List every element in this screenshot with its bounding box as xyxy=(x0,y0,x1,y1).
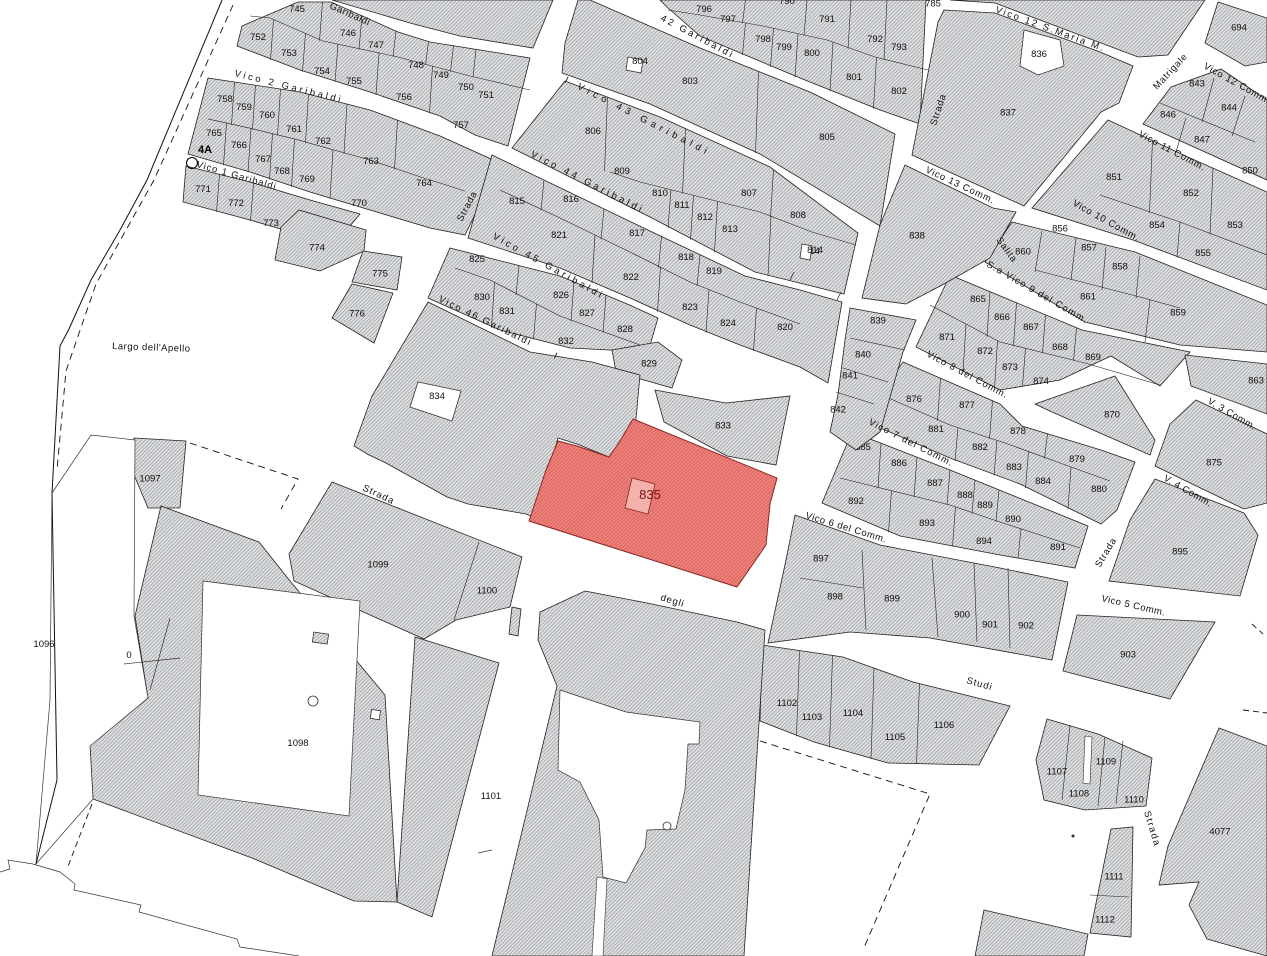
svg-text:814: 814 xyxy=(807,245,823,256)
svg-text:761: 761 xyxy=(286,124,302,135)
svg-text:770: 770 xyxy=(351,198,367,209)
svg-text:791: 791 xyxy=(819,14,835,25)
svg-text:900: 900 xyxy=(954,610,970,621)
svg-text:802: 802 xyxy=(891,86,907,97)
svg-text:843: 843 xyxy=(1189,79,1205,90)
svg-text:752: 752 xyxy=(250,32,266,43)
svg-text:753: 753 xyxy=(281,48,297,59)
svg-text:764: 764 xyxy=(416,178,432,189)
svg-text:867: 867 xyxy=(1023,322,1039,333)
svg-text:811: 811 xyxy=(674,200,689,211)
svg-text:847: 847 xyxy=(1194,135,1210,146)
svg-text:869: 869 xyxy=(1085,352,1101,363)
svg-text:890: 890 xyxy=(1005,514,1021,525)
svg-text:833: 833 xyxy=(715,421,731,432)
svg-text:750: 750 xyxy=(458,82,474,93)
svg-text:766: 766 xyxy=(231,140,247,151)
svg-text:4077: 4077 xyxy=(1209,827,1230,838)
svg-text:859: 859 xyxy=(1170,308,1186,319)
svg-text:762: 762 xyxy=(315,136,331,147)
svg-text:763: 763 xyxy=(363,156,379,167)
svg-text:855: 855 xyxy=(1195,248,1211,259)
svg-text:1100: 1100 xyxy=(477,586,497,597)
svg-text:870: 870 xyxy=(1104,410,1120,421)
svg-text:767: 767 xyxy=(255,154,271,165)
svg-text:773: 773 xyxy=(263,218,279,229)
svg-text:822: 822 xyxy=(623,272,639,283)
svg-text:751: 751 xyxy=(478,90,494,101)
svg-text:888: 888 xyxy=(957,490,973,501)
svg-text:823: 823 xyxy=(682,302,698,313)
svg-text:804: 804 xyxy=(632,56,648,67)
svg-text:1104: 1104 xyxy=(843,708,863,719)
svg-text:868: 868 xyxy=(1052,342,1068,353)
svg-text:889: 889 xyxy=(977,500,993,511)
svg-text:1106: 1106 xyxy=(934,720,954,731)
svg-text:694: 694 xyxy=(1231,23,1247,34)
svg-text:760: 760 xyxy=(259,110,275,121)
svg-text:775: 775 xyxy=(372,269,388,280)
svg-text:836: 836 xyxy=(1031,49,1047,60)
svg-text:1107: 1107 xyxy=(1047,767,1067,778)
svg-text:805: 805 xyxy=(819,132,835,143)
svg-text:886: 886 xyxy=(891,458,907,469)
svg-text:892: 892 xyxy=(848,496,864,507)
svg-text:757: 757 xyxy=(453,120,469,131)
svg-text:831: 831 xyxy=(499,306,515,317)
svg-text:1112: 1112 xyxy=(1095,915,1115,926)
svg-text:772: 772 xyxy=(228,198,244,209)
svg-text:747: 747 xyxy=(368,40,384,51)
svg-text:839: 839 xyxy=(870,316,886,327)
svg-text:899: 899 xyxy=(884,594,900,605)
svg-text:815: 815 xyxy=(509,196,525,207)
svg-text:844: 844 xyxy=(1221,103,1237,114)
svg-text:821: 821 xyxy=(551,230,567,241)
svg-text:785: 785 xyxy=(925,0,941,10)
svg-text:759: 759 xyxy=(236,102,252,113)
svg-text:824: 824 xyxy=(720,318,736,329)
svg-text:808: 808 xyxy=(790,210,806,221)
svg-text:765: 765 xyxy=(206,128,222,139)
svg-text:806: 806 xyxy=(585,126,601,137)
svg-text:852: 852 xyxy=(1183,188,1199,199)
svg-text:816: 816 xyxy=(563,194,579,205)
svg-text:893: 893 xyxy=(919,518,935,529)
svg-text:4A: 4A xyxy=(198,144,212,156)
svg-text:1111: 1111 xyxy=(1104,872,1123,883)
svg-text:1103: 1103 xyxy=(802,712,822,723)
svg-text:841: 841 xyxy=(842,371,858,382)
svg-text:790: 790 xyxy=(779,0,795,7)
svg-text:818: 818 xyxy=(678,252,694,263)
svg-text:874: 874 xyxy=(1033,376,1049,387)
svg-text:857: 857 xyxy=(1081,243,1097,254)
svg-text:810: 810 xyxy=(652,188,668,199)
svg-text:758: 758 xyxy=(217,94,233,105)
svg-text:861: 861 xyxy=(1080,292,1096,303)
svg-text:1096: 1096 xyxy=(33,639,54,650)
svg-text:746: 746 xyxy=(340,28,356,39)
svg-text:799: 799 xyxy=(776,42,792,53)
svg-text:902: 902 xyxy=(1018,621,1034,632)
svg-text:876: 876 xyxy=(906,394,922,405)
svg-text:1109: 1109 xyxy=(1096,757,1116,768)
svg-text:825: 825 xyxy=(469,254,485,265)
svg-text:851: 851 xyxy=(1106,172,1122,183)
svg-text:842: 842 xyxy=(830,405,846,416)
svg-text:883: 883 xyxy=(1006,462,1022,473)
svg-text:792: 792 xyxy=(867,34,883,45)
svg-text:865: 865 xyxy=(970,294,986,305)
svg-text:1110: 1110 xyxy=(1124,795,1144,806)
svg-text:771: 771 xyxy=(195,184,211,195)
svg-text:866: 866 xyxy=(994,312,1010,323)
svg-text:817: 817 xyxy=(629,228,645,239)
svg-text:832: 832 xyxy=(558,336,574,347)
svg-text:1105: 1105 xyxy=(885,732,905,743)
svg-text:858: 858 xyxy=(1112,262,1128,273)
svg-text:901: 901 xyxy=(982,620,998,631)
svg-text:798: 798 xyxy=(755,34,771,45)
svg-text:895: 895 xyxy=(1172,547,1188,558)
svg-text:878: 878 xyxy=(1010,426,1026,437)
svg-text:768: 768 xyxy=(274,166,290,177)
svg-text:872: 872 xyxy=(977,346,993,357)
svg-text:819: 819 xyxy=(706,266,722,277)
svg-text:820: 820 xyxy=(777,322,793,333)
svg-text:838: 838 xyxy=(909,231,925,242)
svg-text:854: 854 xyxy=(1149,220,1165,231)
svg-text:807: 807 xyxy=(741,188,757,199)
svg-text:801: 801 xyxy=(846,72,862,83)
svg-text:813: 813 xyxy=(722,224,738,235)
svg-text:830: 830 xyxy=(474,292,490,303)
svg-text:834: 834 xyxy=(429,391,445,402)
svg-text:1098: 1098 xyxy=(287,738,308,749)
svg-text:769: 769 xyxy=(299,174,315,185)
svg-text:1101: 1101 xyxy=(481,791,501,802)
svg-text:840: 840 xyxy=(855,350,871,361)
svg-text:776: 776 xyxy=(349,309,365,320)
svg-text:812: 812 xyxy=(697,212,713,223)
svg-text:796: 796 xyxy=(696,4,712,15)
svg-text:891: 891 xyxy=(1050,542,1066,553)
svg-text:884: 884 xyxy=(1035,476,1051,487)
svg-text:837: 837 xyxy=(1000,108,1016,119)
svg-text:749: 749 xyxy=(433,70,449,81)
svg-text:803: 803 xyxy=(682,76,698,87)
svg-text:850: 850 xyxy=(1242,166,1258,177)
svg-text:863: 863 xyxy=(1248,376,1264,387)
svg-text:754: 754 xyxy=(314,66,330,77)
svg-text:875: 875 xyxy=(1206,458,1222,469)
svg-text:897: 897 xyxy=(813,554,829,565)
svg-text:826: 826 xyxy=(553,290,569,301)
svg-text:828: 828 xyxy=(617,324,633,335)
svg-text:887: 887 xyxy=(927,478,943,489)
svg-text:829: 829 xyxy=(641,359,657,370)
svg-text:755: 755 xyxy=(346,76,362,87)
svg-text:797: 797 xyxy=(720,14,736,25)
svg-text:879: 879 xyxy=(1069,454,1085,465)
svg-text:774: 774 xyxy=(309,243,325,254)
svg-text:1102: 1102 xyxy=(777,698,797,709)
svg-text:903: 903 xyxy=(1120,650,1136,661)
svg-text:1097: 1097 xyxy=(139,474,160,485)
svg-text:793: 793 xyxy=(891,42,907,53)
svg-text:881: 881 xyxy=(928,424,944,435)
svg-text:877: 877 xyxy=(959,400,975,411)
svg-text:827: 827 xyxy=(579,308,595,319)
svg-text:894: 894 xyxy=(976,536,992,547)
svg-text:809: 809 xyxy=(614,166,630,177)
svg-text:853: 853 xyxy=(1227,220,1243,231)
svg-text:745: 745 xyxy=(289,4,305,15)
svg-text:1099: 1099 xyxy=(367,560,388,571)
svg-text:756: 756 xyxy=(396,92,412,103)
svg-text:880: 880 xyxy=(1091,484,1107,495)
svg-text:871: 871 xyxy=(939,332,955,343)
svg-text:0: 0 xyxy=(126,650,131,661)
svg-text:846: 846 xyxy=(1160,110,1176,121)
svg-text:898: 898 xyxy=(827,592,843,603)
svg-text:856: 856 xyxy=(1052,224,1068,235)
svg-text:1108: 1108 xyxy=(1069,789,1089,800)
svg-text:835: 835 xyxy=(639,487,661,502)
svg-text:748: 748 xyxy=(408,60,424,71)
svg-text:882: 882 xyxy=(972,442,988,453)
svg-text:873: 873 xyxy=(1002,362,1018,373)
svg-text:800: 800 xyxy=(804,48,820,59)
